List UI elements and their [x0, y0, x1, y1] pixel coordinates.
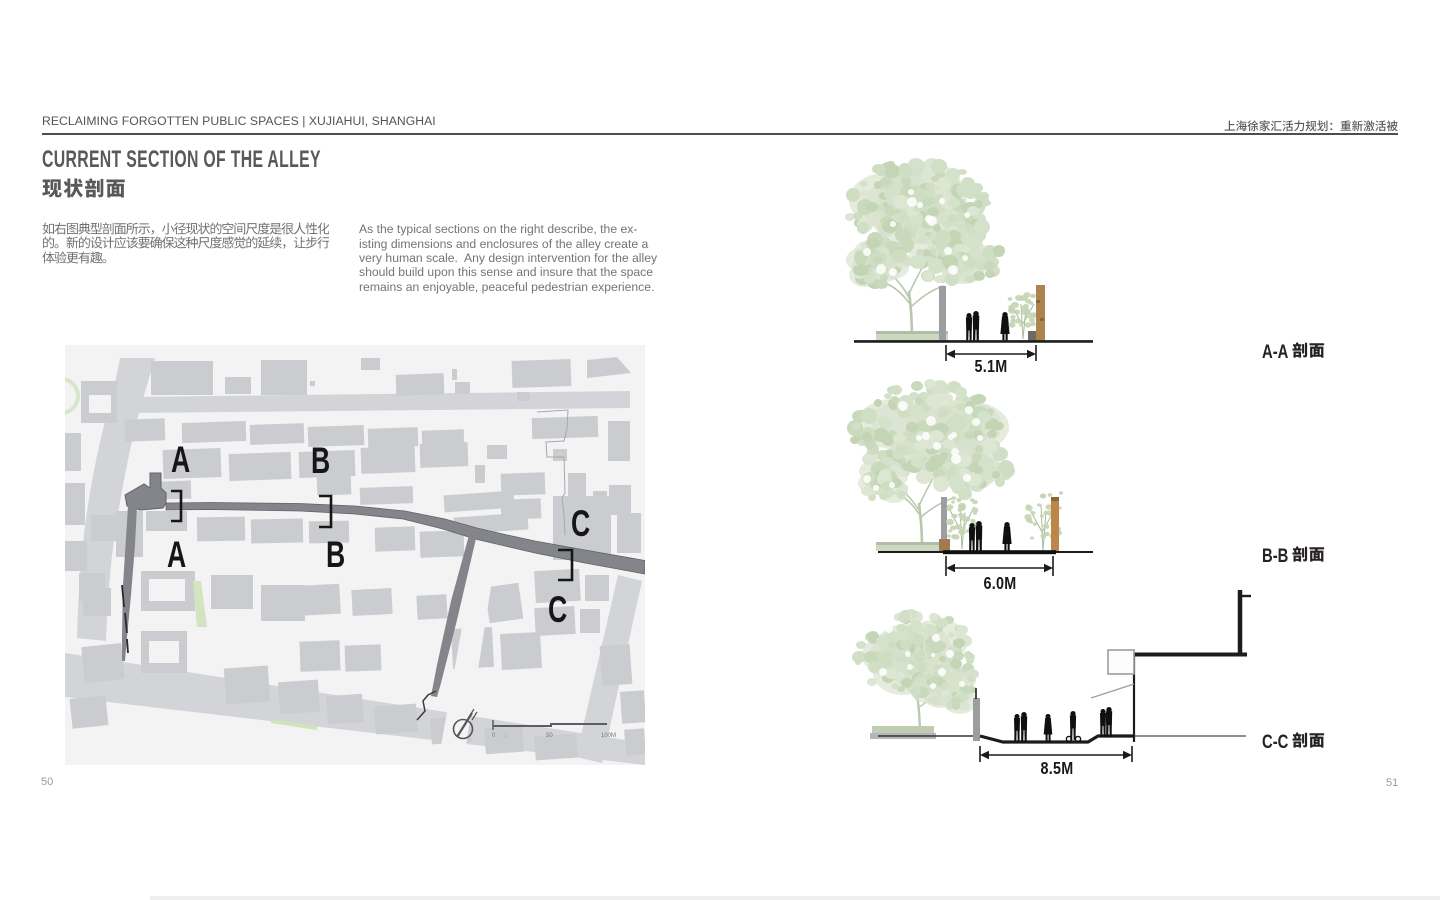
svg-text:100M: 100M — [601, 733, 616, 739]
svg-text:6.0M: 6.0M — [984, 575, 1017, 594]
svg-text:A: A — [171, 439, 190, 480]
svg-text:50: 50 — [546, 733, 553, 739]
svg-text:8.5M: 8.5M — [1041, 760, 1074, 779]
svg-text:C: C — [571, 503, 590, 544]
svg-text:A: A — [167, 534, 186, 575]
svg-text:B: B — [311, 440, 330, 481]
svg-text:C: C — [548, 589, 567, 630]
svg-text:5.1M: 5.1M — [975, 358, 1008, 377]
svg-text:B: B — [326, 534, 345, 575]
